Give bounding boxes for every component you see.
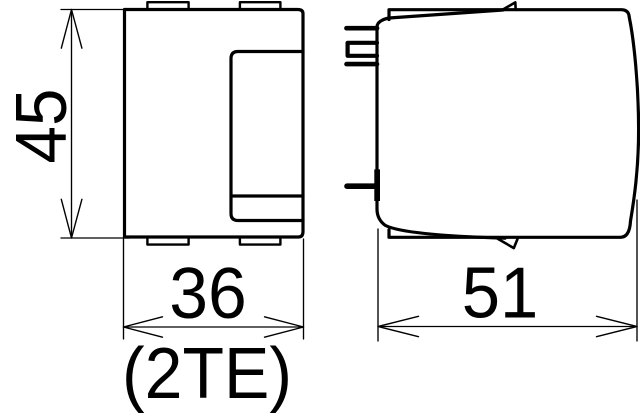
svg-text:36: 36 [169, 254, 247, 334]
svg-text:45: 45 [2, 89, 82, 164]
svg-text:51: 51 [462, 254, 539, 334]
svg-text:(2TE): (2TE) [122, 334, 292, 414]
